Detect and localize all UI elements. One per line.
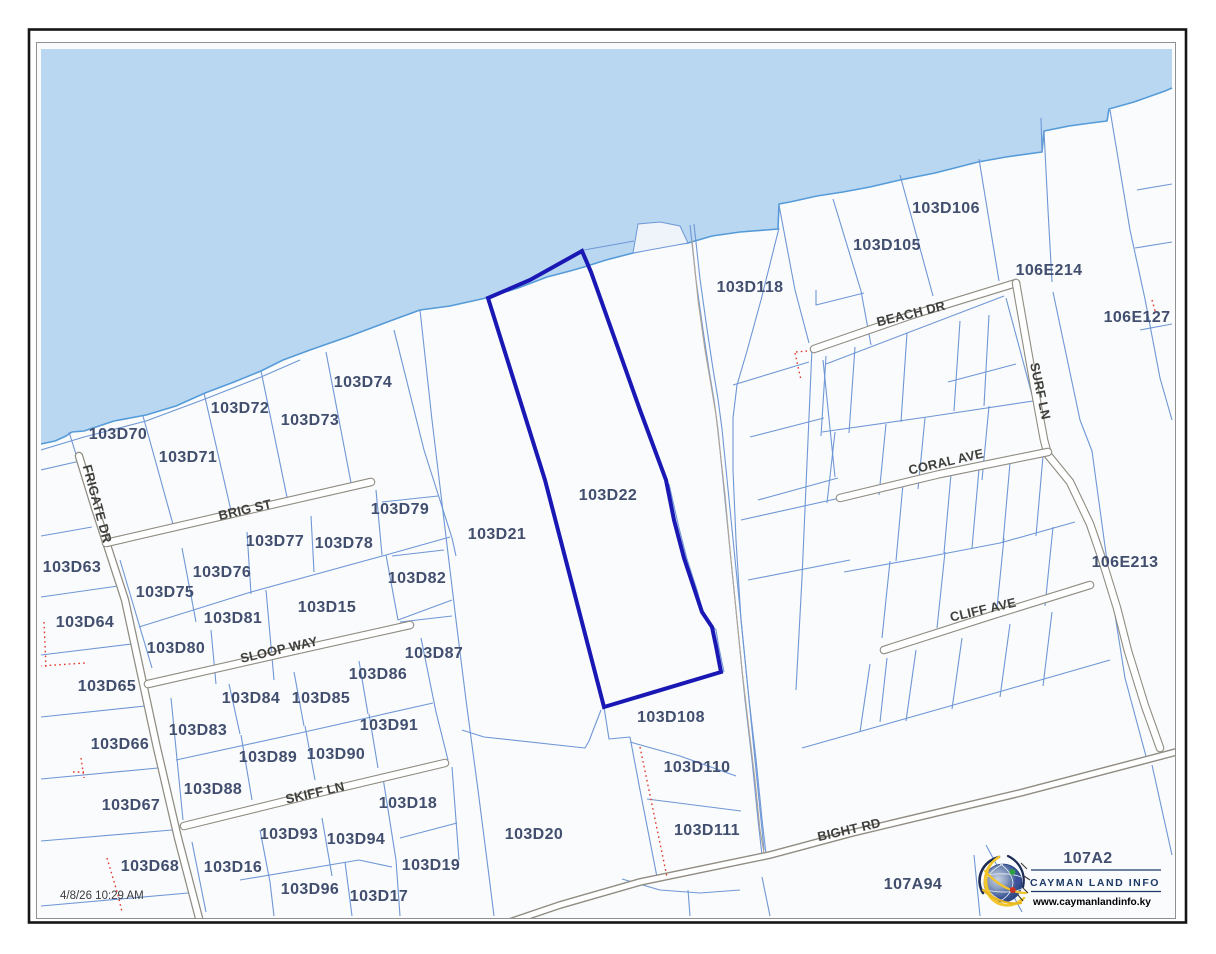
svg-text:103D118: 103D118: [717, 279, 784, 296]
svg-text:103D87: 103D87: [405, 645, 463, 662]
svg-text:103D73: 103D73: [281, 412, 339, 429]
svg-text:103D77: 103D77: [246, 533, 304, 550]
svg-text:103D15: 103D15: [298, 599, 356, 616]
svg-text:107A94: 107A94: [884, 876, 942, 893]
svg-text:103D78: 103D78: [315, 535, 373, 552]
svg-text:103D108: 103D108: [637, 709, 705, 726]
svg-text:106E127: 106E127: [1104, 309, 1171, 326]
svg-text:103D106: 103D106: [912, 200, 980, 217]
svg-text:106E214: 106E214: [1016, 262, 1083, 279]
svg-text:103D81: 103D81: [204, 610, 262, 627]
svg-text:CAYMAN LAND INFO: CAYMAN LAND INFO: [1030, 877, 1160, 889]
svg-text:103D94: 103D94: [327, 831, 385, 848]
svg-text:103D86: 103D86: [349, 666, 407, 683]
svg-text:103D80: 103D80: [147, 640, 205, 657]
svg-text:103D91: 103D91: [360, 717, 418, 734]
svg-text:103D79: 103D79: [371, 501, 429, 518]
svg-text:103D110: 103D110: [664, 759, 731, 776]
svg-text:103D105: 103D105: [853, 237, 921, 254]
svg-text:4/8/26 10:29 AM: 4/8/26 10:29 AM: [60, 890, 144, 902]
svg-text:103D20: 103D20: [505, 826, 563, 843]
svg-text:103D85: 103D85: [292, 690, 350, 707]
svg-text:103D19: 103D19: [402, 857, 460, 874]
svg-text:103D66: 103D66: [91, 736, 149, 753]
svg-text:103D83: 103D83: [169, 722, 227, 739]
svg-text:103D22: 103D22: [579, 487, 637, 504]
svg-text:103D72: 103D72: [211, 400, 269, 417]
svg-text:103D75: 103D75: [136, 584, 194, 601]
svg-text:103D21: 103D21: [468, 526, 526, 543]
svg-text:103D65: 103D65: [78, 678, 136, 695]
svg-text:103D68: 103D68: [121, 858, 179, 875]
svg-text:www.caymanlandinfo.ky: www.caymanlandinfo.ky: [1032, 897, 1151, 908]
svg-text:103D84: 103D84: [222, 690, 280, 707]
svg-text:103D74: 103D74: [334, 374, 392, 391]
svg-text:103D71: 103D71: [159, 449, 217, 466]
svg-text:103D111: 103D111: [674, 822, 740, 839]
svg-text:103D18: 103D18: [379, 795, 437, 812]
svg-text:107A2: 107A2: [1063, 850, 1112, 867]
svg-text:103D16: 103D16: [204, 859, 262, 876]
svg-text:103D96: 103D96: [281, 881, 339, 898]
svg-text:106E213: 106E213: [1092, 554, 1159, 571]
svg-text:103D67: 103D67: [102, 797, 160, 814]
svg-text:103D88: 103D88: [184, 781, 242, 798]
svg-text:103D63: 103D63: [43, 559, 101, 576]
svg-text:103D64: 103D64: [56, 614, 114, 631]
svg-text:103D70: 103D70: [89, 426, 147, 443]
svg-text:103D90: 103D90: [307, 746, 365, 763]
svg-text:103D17: 103D17: [350, 888, 408, 905]
svg-text:103D93: 103D93: [260, 826, 318, 843]
svg-text:103D89: 103D89: [239, 749, 297, 766]
svg-text:103D82: 103D82: [388, 570, 446, 587]
svg-text:103D76: 103D76: [193, 564, 251, 581]
